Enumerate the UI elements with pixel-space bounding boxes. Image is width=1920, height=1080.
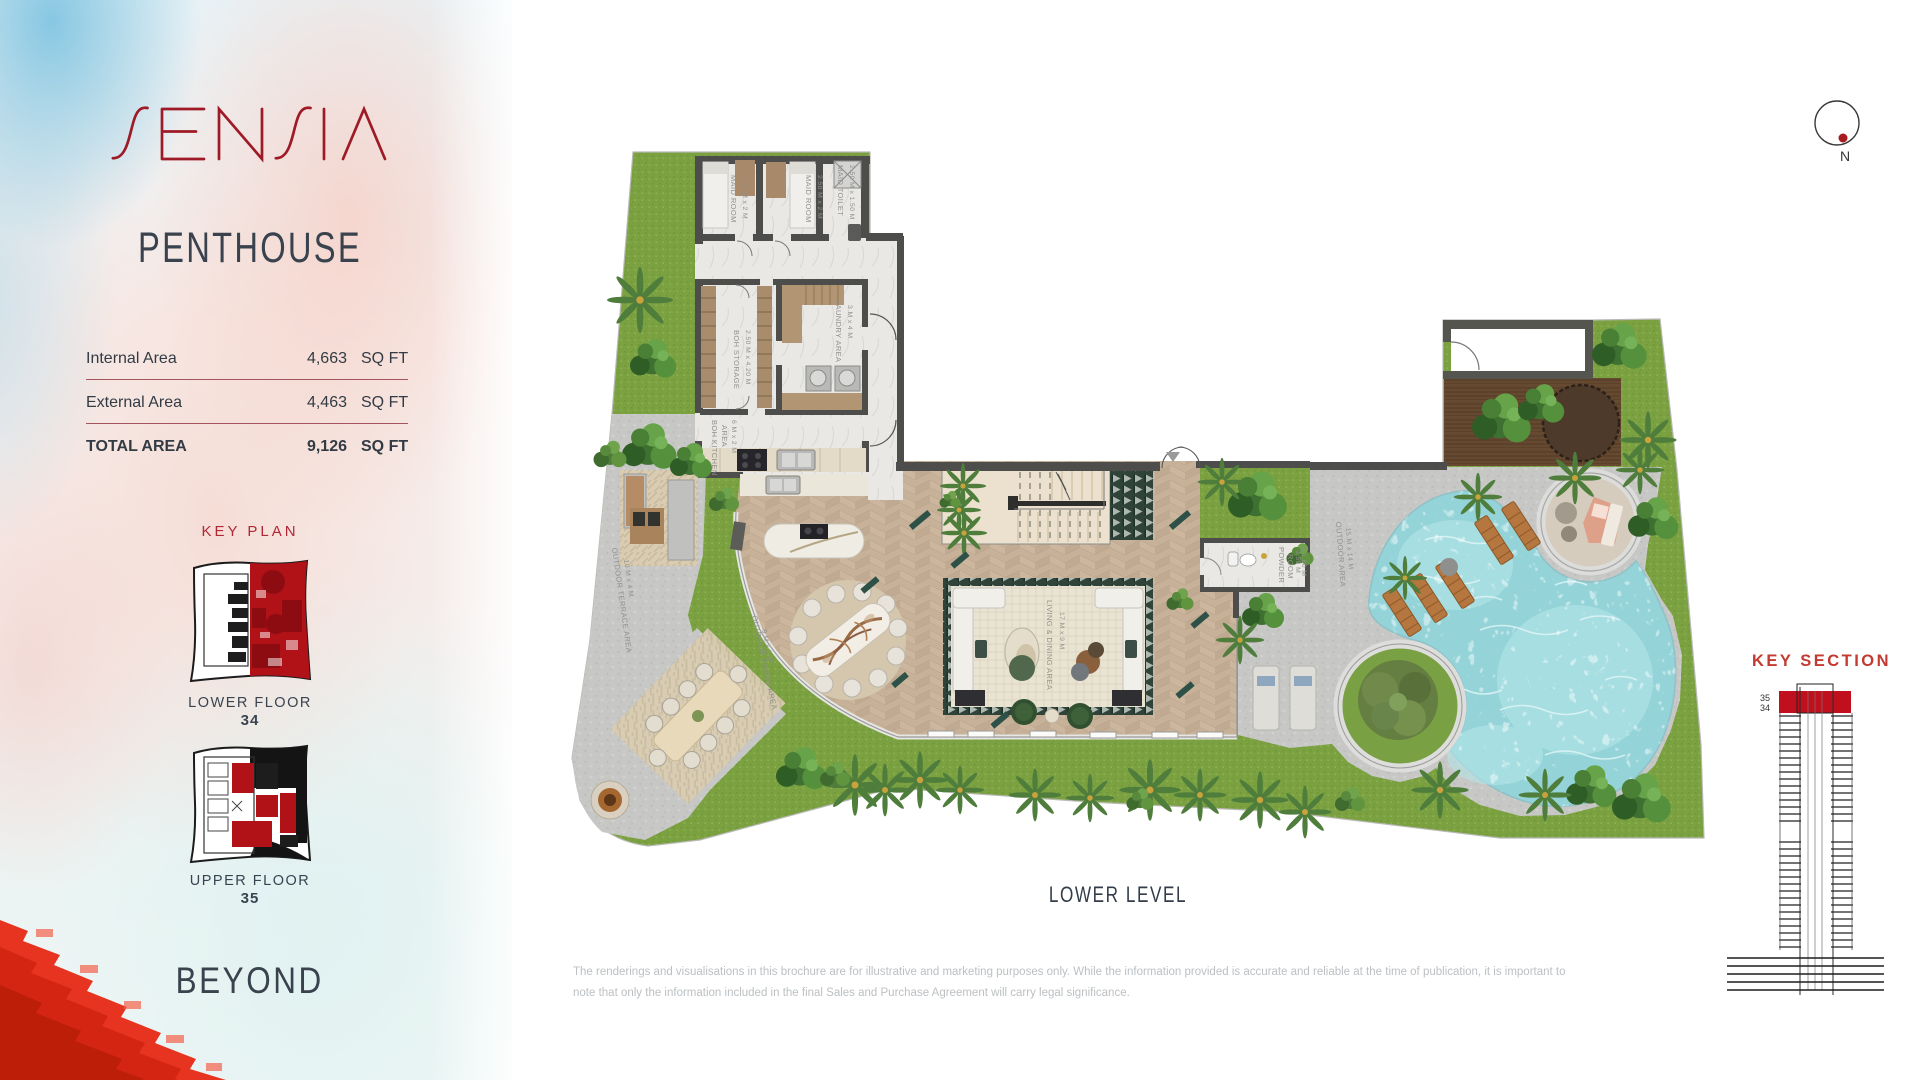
svg-text:LAUNDRY AREA: LAUNDRY AREA <box>834 300 843 362</box>
svg-text:BOH KITCHEN: BOH KITCHEN <box>710 420 719 476</box>
svg-text:2.50 M x 4.20 M: 2.50 M x 4.20 M <box>744 330 751 385</box>
svg-text:N: N <box>1840 148 1850 164</box>
svg-text:3 M x 4 M: 3 M x 4 M <box>846 305 853 338</box>
svg-text:AREA: AREA <box>720 425 729 447</box>
svg-text:POWDER: POWDER <box>1277 547 1286 583</box>
svg-text:KEY SECTION: KEY SECTION <box>1752 652 1891 670</box>
svg-text:MAID ROOM: MAID ROOM <box>729 175 738 223</box>
svg-text:17 M x 9 M: 17 M x 9 M <box>1058 612 1065 650</box>
svg-text:2.50 M x 2 M: 2.50 M x 2 M <box>816 175 823 219</box>
svg-text:2.50 M x 2 M: 2.50 M x 2 M <box>741 175 748 219</box>
svg-text:3.50 M: 3.50 M <box>1294 550 1301 573</box>
svg-text:35: 35 <box>1760 693 1770 703</box>
svg-text:BOH STORAGE: BOH STORAGE <box>732 330 741 389</box>
svg-text:MAID TOILET: MAID TOILET <box>836 165 845 216</box>
svg-text:6 M x 2 M: 6 M x 2 M <box>730 420 737 453</box>
svg-text:ROOM: ROOM <box>1286 554 1295 579</box>
svg-text:LIVING & DINING AREA: LIVING & DINING AREA <box>1045 600 1054 690</box>
svg-text:MAID ROOM: MAID ROOM <box>804 175 813 223</box>
svg-text:2.50 M x 1.50 M: 2.50 M x 1.50 M <box>848 165 855 220</box>
svg-text:34: 34 <box>1760 703 1770 713</box>
svg-text:x 1.60 M: x 1.60 M <box>1300 547 1307 576</box>
